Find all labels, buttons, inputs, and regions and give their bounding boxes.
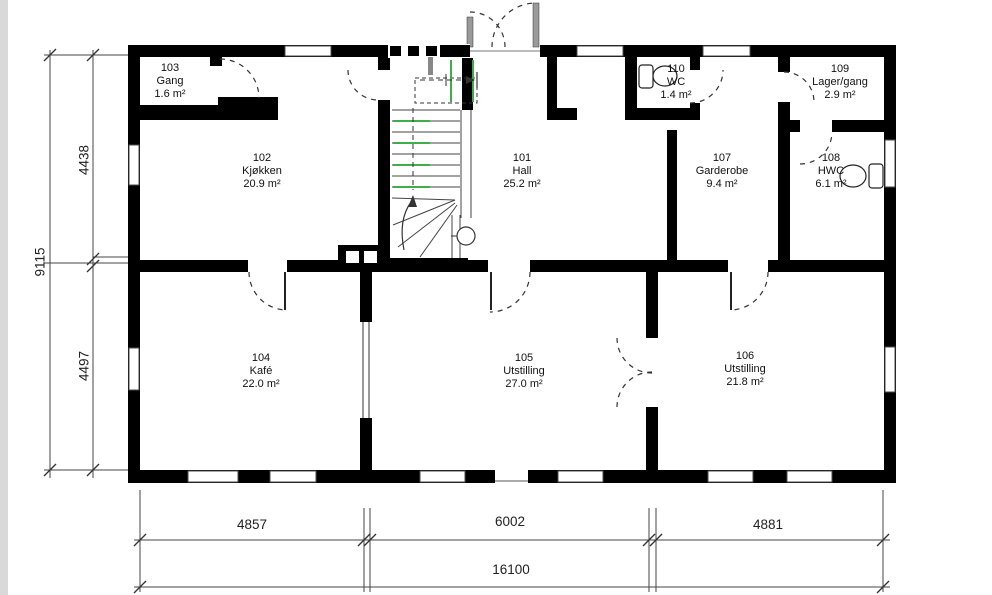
room-label-103: 103 Gang 1.6 m²: [154, 62, 185, 101]
room-number: 101: [503, 152, 540, 165]
room-label-109: 109 Lager/gang 2.9 m²: [812, 63, 868, 102]
exit-opening: [495, 470, 528, 483]
room-name: Utstilling: [724, 363, 766, 376]
room-area: 1.6 m²: [154, 88, 185, 101]
dim-bottom-right: 4881: [753, 517, 783, 532]
room-area: 27.0 m²: [503, 378, 545, 391]
dim-left-total: 9115: [33, 247, 48, 276]
room-number: 108: [815, 152, 846, 165]
room-number: 106: [724, 350, 766, 363]
dimension-ticks: [44, 49, 889, 593]
door-arc-105: [490, 272, 530, 312]
room-area: 1.4 m²: [660, 89, 691, 102]
dim-left-bottom: 4497: [77, 351, 92, 381]
room-number: 103: [154, 62, 185, 75]
entrance-door-leaf: [467, 17, 473, 47]
stair-newel-symbol: [457, 227, 475, 245]
room-name: Lager/gang: [812, 76, 868, 89]
entrance-door-leaf: [533, 3, 539, 47]
room-name: Utstilling: [503, 365, 545, 378]
room-label-105: 105 Utstilling 27.0 m²: [503, 352, 545, 391]
page-margin-strip: [0, 0, 8, 595]
room-number: 104: [242, 352, 279, 365]
door-arc-double-bottom: [617, 372, 652, 407]
room-label-104: 104 Kafé 22.0 m²: [242, 352, 279, 391]
room-number: 105: [503, 352, 545, 365]
glass-partition: [363, 322, 369, 418]
door-arc-entrance-right: [492, 3, 536, 47]
door-arc-kjokken: [348, 70, 378, 100]
room-name: WC: [660, 76, 691, 89]
room-area: 2.9 m²: [812, 89, 868, 102]
room-name: Hall: [503, 165, 540, 178]
dim-bottom-left: 4857: [237, 517, 267, 532]
floorplan-page: 101 Hall 25.2 m² 102 Kjøkken 20.9 m² 103…: [0, 0, 992, 595]
chimney: [338, 245, 382, 272]
room-area: 20.9 m²: [242, 178, 282, 191]
room-number: 102: [242, 152, 282, 165]
interior-walls: [128, 57, 884, 470]
room-name: Gang: [154, 75, 185, 88]
room-area: 21.8 m²: [724, 376, 766, 389]
door-swings: [220, 3, 832, 407]
entrance-opening: [467, 3, 540, 58]
dim-bottom-total: 16100: [492, 562, 530, 577]
door-arc-double-top: [617, 338, 652, 373]
room-label-106: 106 Utstilling 21.8 m²: [724, 350, 766, 389]
room-label-101: 101 Hall 25.2 m²: [503, 152, 540, 191]
room-name: Kafé: [242, 365, 279, 378]
room-name: Kjøkken: [242, 165, 282, 178]
room-number: 109: [812, 63, 868, 76]
room-number: 107: [696, 152, 749, 165]
room-name: Garderobe: [696, 165, 749, 178]
door-arc-entrance-left: [470, 12, 505, 47]
door-leaves: [285, 272, 731, 310]
room-label-102: 102 Kjøkken 20.9 m²: [242, 152, 282, 191]
dimension-lines: [44, 50, 890, 592]
room-area: 25.2 m²: [503, 178, 540, 191]
room-label-107: 107 Garderobe 9.4 m²: [696, 152, 749, 191]
door-arc-109: [784, 72, 814, 102]
door-arc-110: [690, 70, 723, 103]
door-arc-103: [220, 59, 259, 98]
room-name: HWC: [815, 165, 846, 178]
room-area: 9.4 m²: [696, 178, 749, 191]
room-area: 22.0 m²: [242, 378, 279, 391]
room-label-108: 108 HWC 6.1 m²: [815, 152, 846, 191]
dim-bottom-mid: 6002: [495, 514, 525, 529]
room-area: 6.1 m²: [815, 178, 846, 191]
room-number: 110: [660, 63, 691, 76]
dim-left-top: 4438: [77, 145, 92, 175]
room-label-110: 110 WC 1.4 m²: [660, 63, 691, 102]
door-arc-104: [249, 272, 287, 310]
door-arc-106: [730, 272, 768, 310]
